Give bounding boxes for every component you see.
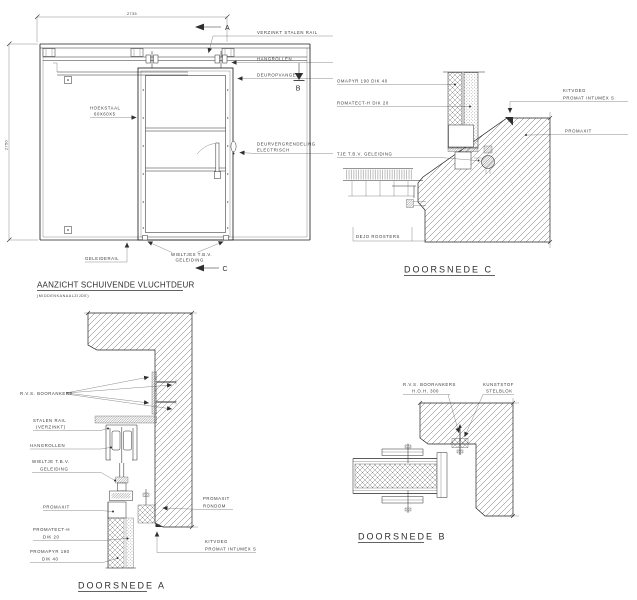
hanger-rollers bbox=[146, 51, 227, 68]
label-hangrollen: HANGROLLEN bbox=[30, 443, 65, 448]
label-promaxit: PROMAXIT bbox=[565, 129, 592, 134]
mounting-plate bbox=[95, 416, 157, 423]
technical-drawing-sheet: 2735 2750 A B C bbox=[0, 0, 637, 600]
label-stalen-rail: STALEN RAIL bbox=[33, 418, 66, 423]
elevation-subtitle: (MIDDENKANAALZIJDE) bbox=[37, 294, 89, 298]
section-marker-c: C bbox=[195, 265, 228, 273]
label-kitvoeg-product: PROMAT INTUMEX S bbox=[205, 547, 256, 552]
label-verzinkt-stalen-rail: VERZINKT STALEN RAIL bbox=[257, 30, 318, 35]
elevation-title: AANZICHT SCHUIVENDE VLUCHTDEUR bbox=[37, 281, 194, 290]
section-letter-c: C bbox=[223, 266, 228, 273]
sliding-door-leaf bbox=[138, 68, 236, 240]
label-deuropvanger: DEUROPVANGER bbox=[257, 73, 300, 78]
section-c-title: DOORSNEDE C bbox=[404, 265, 493, 275]
label-stelblok: STELBLOK bbox=[486, 389, 513, 394]
label-hoekstaal-size: 60X60X5 bbox=[94, 112, 116, 117]
label-kitvoeg: KITVOEG bbox=[563, 88, 586, 93]
label-promatect: ROMATECT-H DIK 20 bbox=[337, 101, 389, 106]
label-wieltje-geleiding: TJE T.B.V. GELEIDING bbox=[337, 152, 393, 157]
section-a-annotations: R.V.S. BOORANKERS STALEN RAIL (VERZINKT)… bbox=[20, 377, 256, 563]
bottom-guide-wheel-right bbox=[224, 236, 229, 241]
label-hoekstaal: HOEKSTAAL bbox=[90, 106, 120, 111]
door-leaf-section bbox=[106, 491, 137, 568]
frame-fasteners bbox=[143, 89, 229, 228]
section-b-title: DOORSNEDE B bbox=[358, 532, 447, 542]
floor-grating bbox=[343, 169, 426, 242]
door-handle bbox=[197, 143, 221, 179]
section-a-title: DOORSNEDE A bbox=[78, 581, 166, 591]
section-letter-a: A bbox=[225, 25, 230, 32]
label-kitvoeg-product: PROMAT INTUMEX S bbox=[563, 96, 614, 101]
label-wieltjes: WIELTJES T.B.V. bbox=[171, 252, 212, 257]
label-promatect: PROMATECT-H bbox=[33, 527, 70, 532]
section-marker-b: B bbox=[294, 63, 305, 93]
rail-brackets bbox=[43, 49, 234, 57]
guide-rail bbox=[53, 63, 188, 234]
elevation-annotations: VERZINKT STALEN RAIL HANGROLLEN DEUROPVA… bbox=[85, 30, 333, 263]
dimension-lines: 2735 2750 bbox=[5, 12, 230, 242]
label-rvs-boorankers: R.V.S. BOORANKERS bbox=[20, 391, 73, 396]
door-lock-device bbox=[231, 141, 236, 154]
label-kitvoeg: KITVOEG bbox=[205, 539, 228, 544]
label-wieltje: WIELTJE T.B.V. bbox=[32, 459, 70, 464]
label-promapyr: PROMAPYR 190 bbox=[30, 549, 70, 554]
elevation-title-block: AANZICHT SCHUIVENDE VLUCHTDEUR (MIDDENKA… bbox=[37, 281, 194, 299]
label-wieltje-geleiding: GELEIDING bbox=[40, 467, 68, 472]
label-deurvergrendeling: DEURVERGRENDELING bbox=[257, 142, 316, 147]
label-promaxit-rondom: PROMAXIT bbox=[203, 496, 230, 501]
label-rondom: RONDOM bbox=[203, 504, 226, 509]
label-hoh-300: H.O.H. 300 bbox=[412, 389, 439, 394]
label-promapyr-dik: DIK 40 bbox=[42, 557, 58, 562]
label-geleiderail: GELEIDERAIL bbox=[85, 256, 119, 261]
label-verzinkt: (VERZINKT) bbox=[36, 425, 66, 430]
bottom-profile bbox=[449, 125, 474, 147]
concrete-wall bbox=[420, 403, 513, 516]
section-c-view: OMAPYR 190 DIK 40 ROMATECT-H DIK 20 TJE … bbox=[330, 30, 637, 290]
label-wieltjes-geleiding: GELEIDING bbox=[176, 258, 204, 263]
section-a-title-block: DOORSNEDE A bbox=[78, 581, 166, 592]
label-promatect-dik: DIK 20 bbox=[43, 535, 59, 540]
label-hangrollen: HANGROLLEN bbox=[257, 57, 292, 62]
label-kunststof: KUNSTSTOF bbox=[483, 382, 514, 387]
section-letter-b: B bbox=[296, 86, 301, 93]
concrete-wall bbox=[418, 118, 550, 242]
door-leaf-horizontal-section bbox=[353, 444, 447, 514]
label-promaxit: PROMAXIT bbox=[43, 505, 70, 510]
steel-rail-profile bbox=[106, 425, 137, 460]
label-electrisch: ELECTRISCH bbox=[257, 148, 290, 153]
section-a-view: R.V.S. BOORANKERS STALEN RAIL (VERZINKT)… bbox=[0, 305, 330, 600]
label-rvs-boorankers: R.V.S. BOORANKERS bbox=[403, 382, 456, 387]
height-dimension: 2750 bbox=[5, 140, 9, 150]
width-dimension: 2735 bbox=[127, 12, 137, 16]
label-dejo-roosters: DEJO ROOSTERS bbox=[356, 234, 400, 239]
section-a-drawing bbox=[84, 311, 198, 568]
elevation-view: 2735 2750 A B C bbox=[0, 0, 335, 305]
bottom-guide-wheel-left bbox=[143, 236, 148, 241]
section-c-title-block: DOORSNEDE C bbox=[404, 265, 495, 276]
section-c-drawing bbox=[343, 72, 552, 248]
section-b-title-block: DOORSNEDE B bbox=[358, 532, 447, 543]
section-marker-a: A bbox=[195, 24, 230, 32]
anchor-plate-vertical bbox=[152, 372, 157, 414]
label-promapyr: OMAPYR 190 DIK 40 bbox=[337, 79, 388, 84]
section-b-drawing bbox=[353, 398, 519, 518]
section-b-view: R.V.S. BOORANKERS H.O.H. 300 KUNSTSTOF S… bbox=[330, 355, 637, 555]
